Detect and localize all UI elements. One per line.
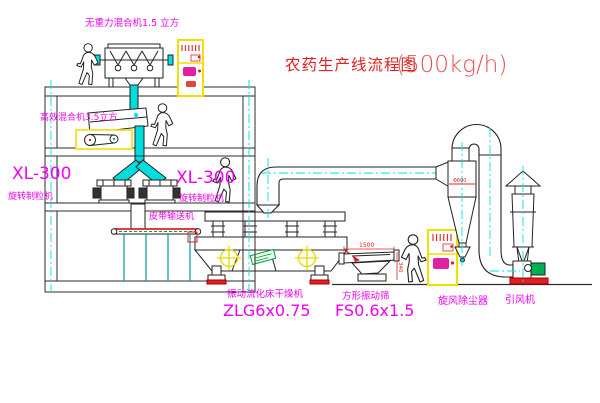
granulator-mid-model: XL-300 <box>176 168 235 188</box>
granulator-discharge-duct <box>131 204 145 229</box>
granulator-mid-name: 旋转制粒机 <box>179 192 224 204</box>
floor2-mixer-label: 高效混合机3.5立方 <box>40 111 117 123</box>
dryer-inlet-ports <box>211 221 337 237</box>
granulator-left <box>93 180 134 203</box>
fluid-bed-dryer <box>188 212 352 284</box>
dryer-name-label: 振动流化床干燥机 <box>227 288 304 300</box>
worker-roof <box>77 44 98 85</box>
dryer-model-label: ZLG6x0.75 <box>223 301 311 320</box>
dryer-exhaust-duct <box>257 167 448 213</box>
screen-side-dim: 340 <box>397 262 403 273</box>
cyclone-name-label: 旋风除尘器 <box>438 294 488 307</box>
screen-length-dim: 1500 <box>359 242 374 249</box>
induced-draft-fan <box>510 261 548 284</box>
control-cabinet-roof <box>178 40 203 96</box>
cyclone-inlet-dim: Φ600 <box>453 178 466 184</box>
flow-diagram-canvas: 无重力混合机1.5 立方 农药生产线流程图 (500kg/h) 高效混合机3.5… <box>0 0 600 403</box>
belt-conveyor <box>111 229 201 281</box>
control-cabinet-field <box>428 230 457 285</box>
worker-ground <box>401 235 426 282</box>
worker-floor2 <box>151 104 173 146</box>
top-mixer-label: 无重力混合机1.5 立方 <box>85 17 179 29</box>
granulator-left-name: 旋转制粒机 <box>8 190 53 202</box>
gravity-free-mixer <box>95 44 173 112</box>
mixer2-discharge-pipe <box>135 126 144 158</box>
granulator-right <box>139 180 180 203</box>
page-title-capacity: (500kg/h) <box>396 52 507 78</box>
fan-name-label: 引风机 <box>505 293 535 306</box>
mixer-downpipe <box>130 85 138 112</box>
screen-model-label: FS0.6x1.5 <box>335 301 414 320</box>
granulator-left-model: XL-300 <box>12 164 71 184</box>
cad-drawing: 无重力混合机1.5 立方 农药生产线流程图 (500kg/h) 高效混合机3.5… <box>0 0 600 403</box>
belt-conveyor-label: 皮带输送机 <box>149 210 194 222</box>
